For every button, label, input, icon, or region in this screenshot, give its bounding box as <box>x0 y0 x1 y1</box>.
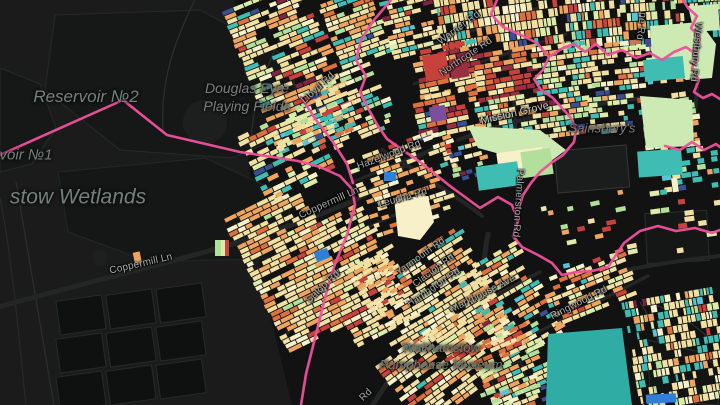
map-canvas-svg <box>0 0 720 405</box>
map-viewport[interactable]: Reservoir №2voir №1stow WetlandsDouglas … <box>0 0 720 405</box>
